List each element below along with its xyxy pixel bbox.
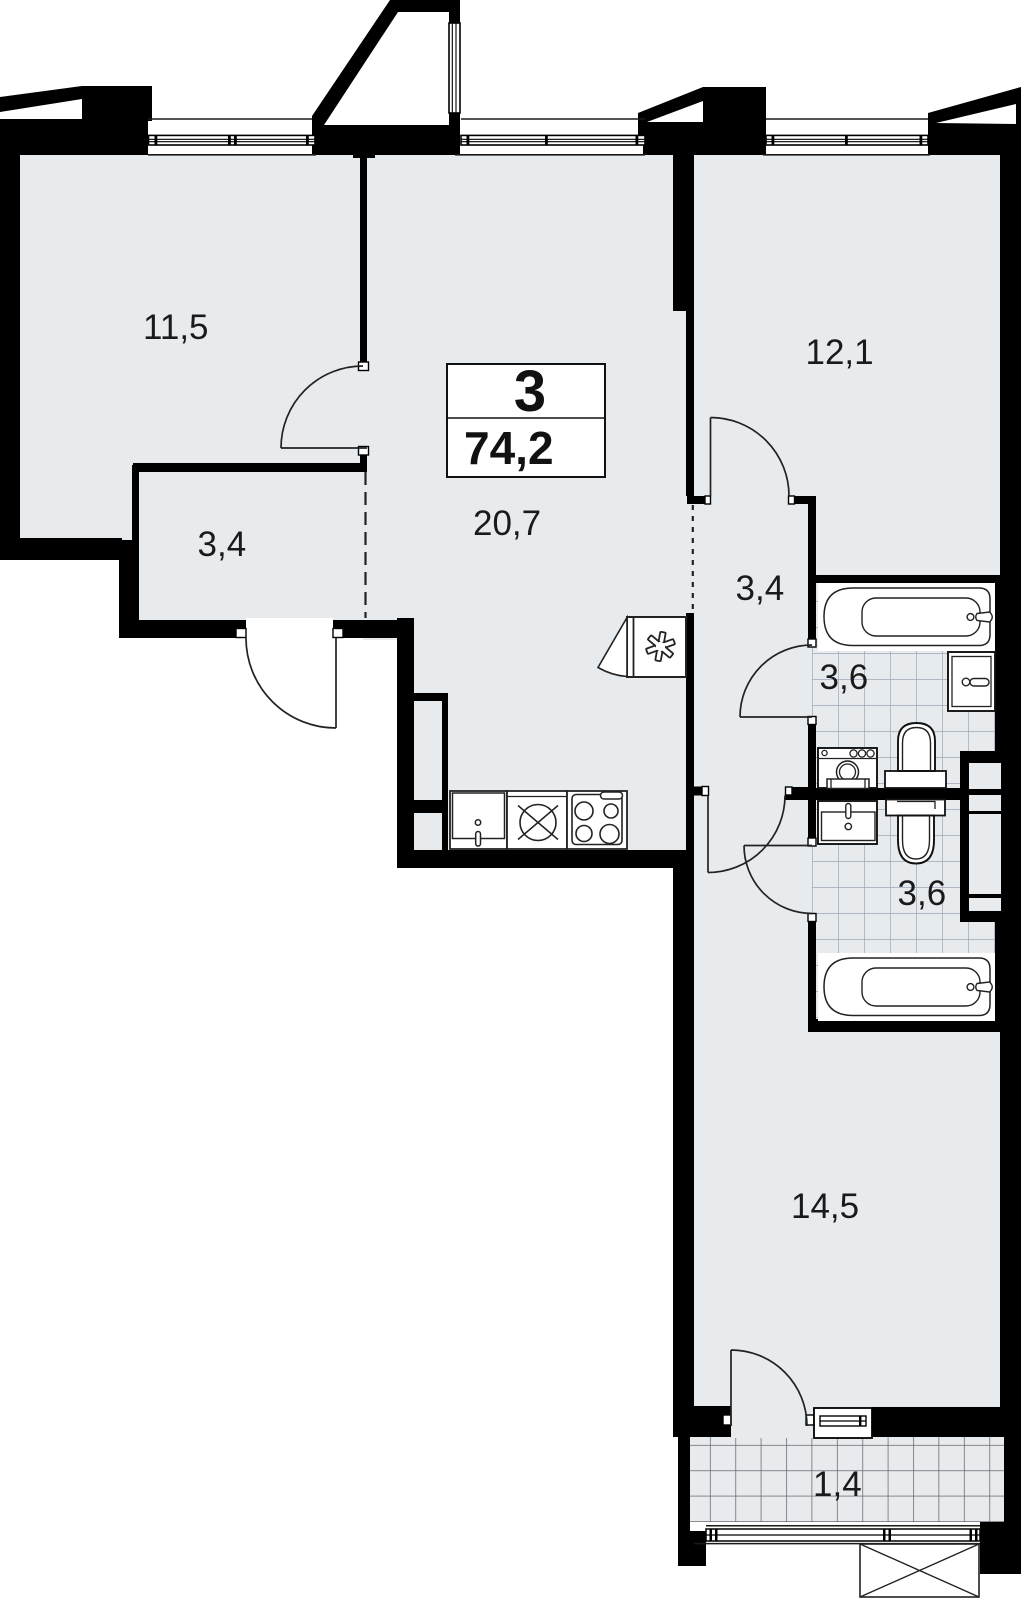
svg-text:3,4: 3,4: [198, 525, 247, 564]
svg-text:12,1: 12,1: [806, 333, 874, 372]
svg-text:3,6: 3,6: [898, 874, 947, 913]
svg-text:14,5: 14,5: [791, 1187, 859, 1226]
svg-text:1,4: 1,4: [813, 1465, 862, 1504]
svg-text:3: 3: [514, 359, 546, 424]
svg-text:20,7: 20,7: [473, 504, 541, 543]
svg-text:3,4: 3,4: [736, 569, 785, 608]
svg-text:74,2: 74,2: [464, 422, 554, 474]
svg-text:11,5: 11,5: [143, 308, 209, 347]
svg-text:3,6: 3,6: [820, 658, 869, 697]
